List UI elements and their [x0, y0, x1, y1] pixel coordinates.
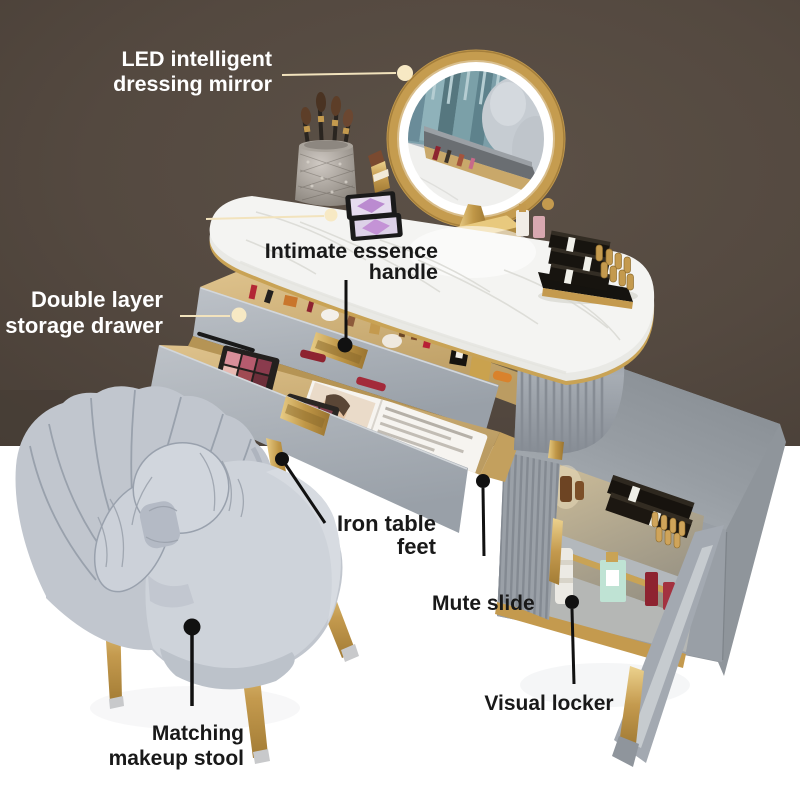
svg-text:feet: feet: [397, 534, 437, 559]
svg-text:makeup stool: makeup stool: [109, 747, 244, 770]
svg-text:storage drawer: storage drawer: [5, 313, 163, 338]
svg-text:Iron table: Iron table: [337, 511, 436, 536]
svg-text:Double layer: Double layer: [31, 287, 163, 312]
svg-text:Matching: Matching: [152, 722, 244, 745]
svg-text:Mute slide: Mute slide: [432, 592, 535, 615]
svg-text:Visual locker: Visual locker: [484, 692, 613, 715]
svg-text:handle: handle: [369, 260, 438, 284]
svg-text:LED intelligent: LED intelligent: [122, 47, 273, 71]
svg-text:dressing mirror: dressing mirror: [113, 72, 273, 96]
